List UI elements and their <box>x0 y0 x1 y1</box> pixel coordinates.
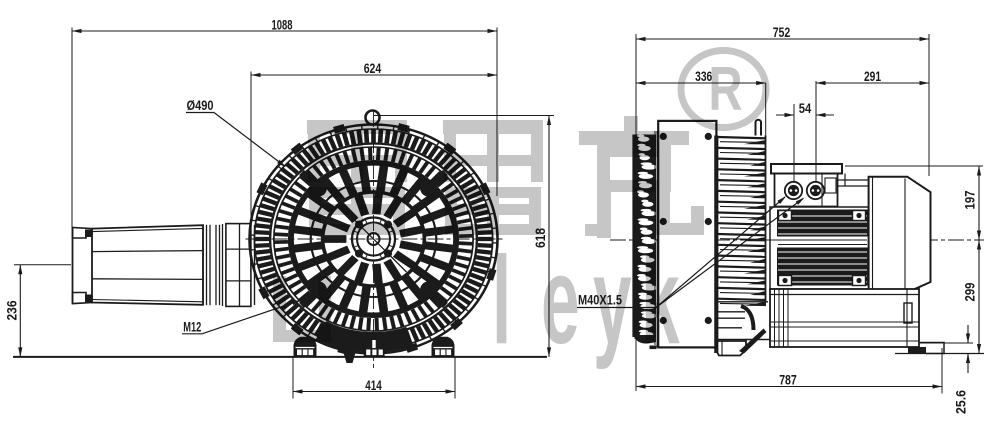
svg-text:54: 54 <box>799 100 812 116</box>
svg-text:414: 414 <box>365 377 382 393</box>
svg-text:197: 197 <box>962 190 978 209</box>
svg-text:236: 236 <box>3 300 19 320</box>
svg-text:752: 752 <box>773 24 791 40</box>
svg-text:y: y <box>593 232 632 370</box>
svg-text:291: 291 <box>864 68 881 84</box>
svg-text:R: R <box>709 55 743 124</box>
svg-text:l: l <box>492 232 511 370</box>
svg-text:1088: 1088 <box>272 16 293 32</box>
svg-text:M12: M12 <box>183 319 201 335</box>
svg-text:Ø490: Ø490 <box>187 97 214 113</box>
svg-text:299: 299 <box>962 282 978 301</box>
svg-text:787: 787 <box>779 372 797 388</box>
svg-text:624: 624 <box>364 60 382 76</box>
svg-text:e: e <box>541 232 580 370</box>
svg-text:k: k <box>641 232 680 370</box>
svg-text:25.6: 25.6 <box>953 390 969 414</box>
